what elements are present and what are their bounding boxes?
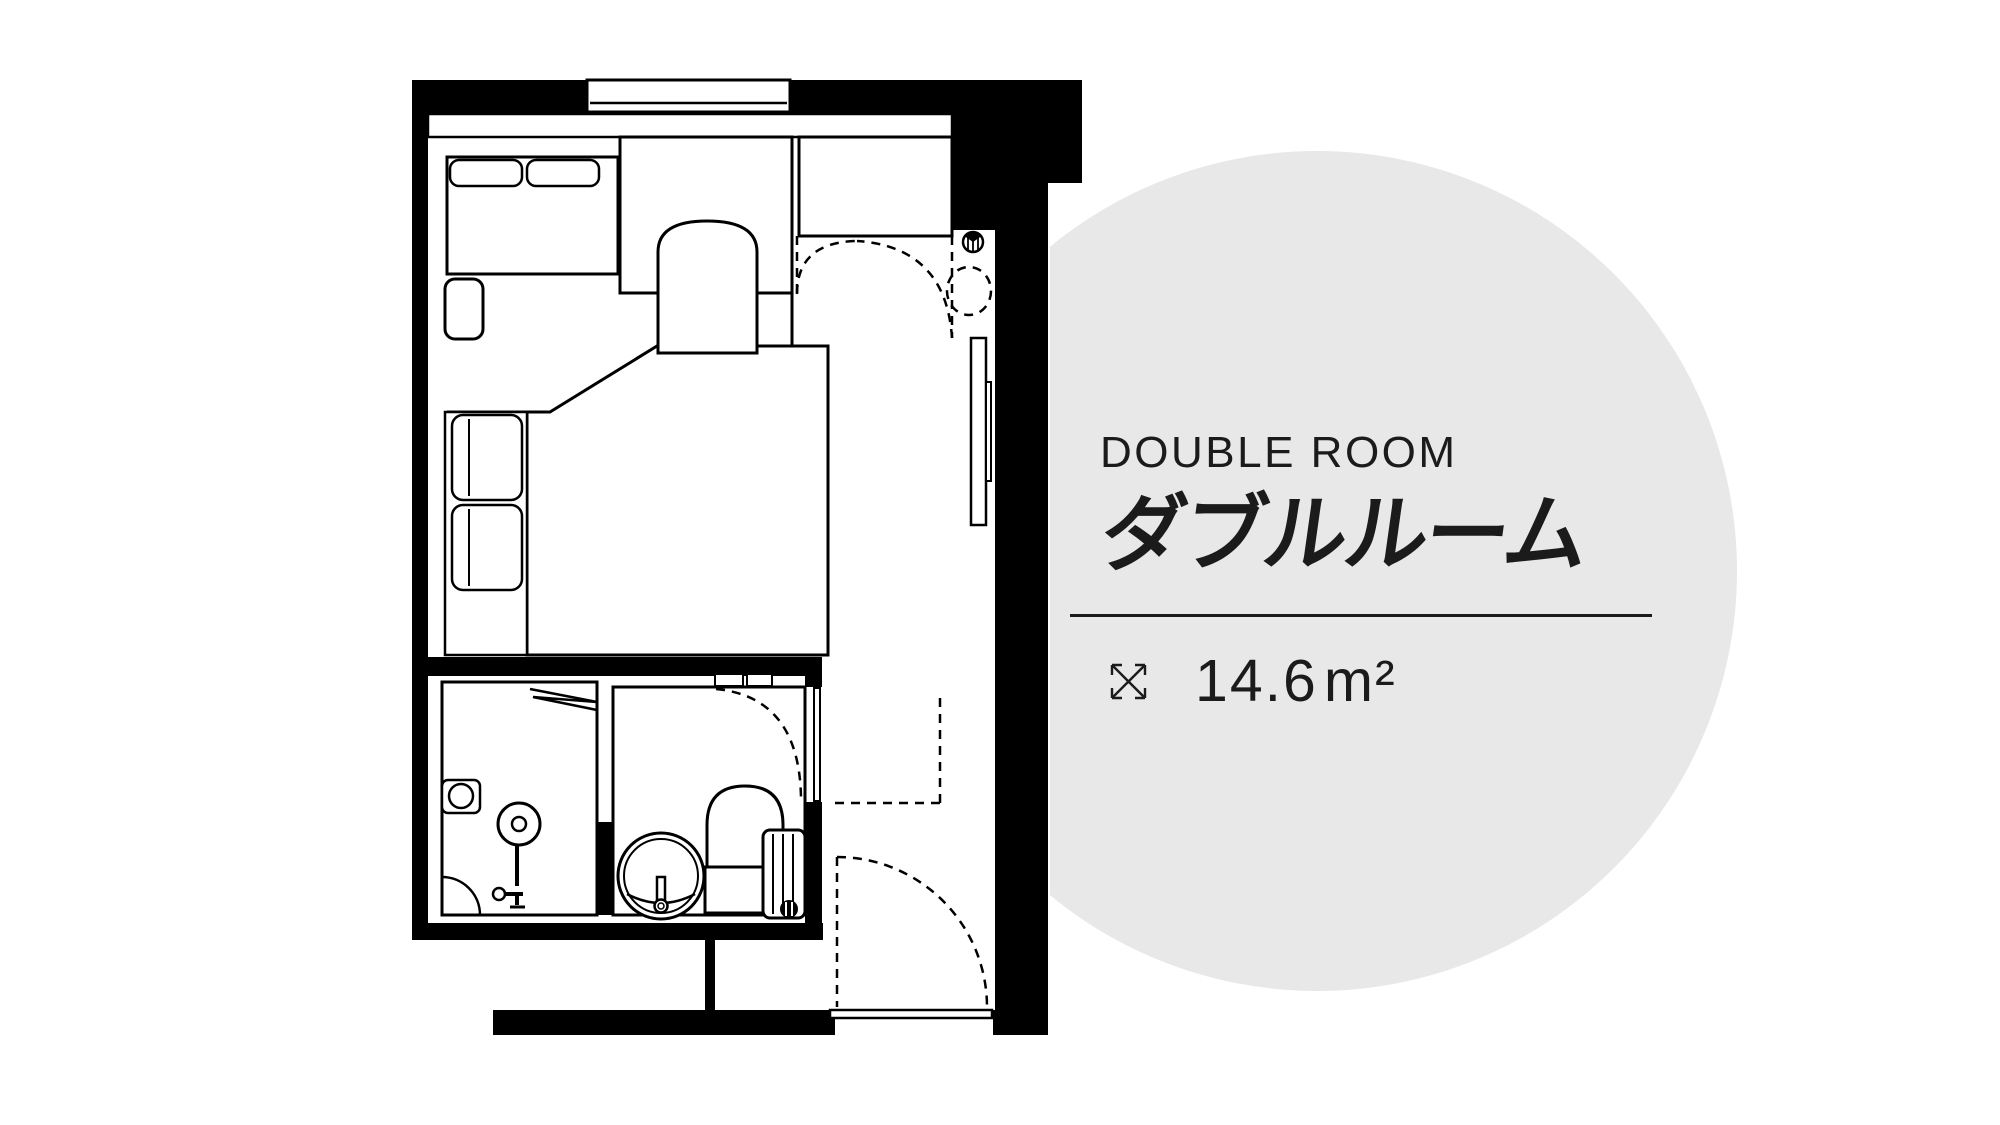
chair (658, 221, 757, 353)
toilet-room (613, 674, 820, 919)
floor-plan-graphic (0, 0, 2000, 1125)
pillow-shelf (445, 412, 527, 655)
window (587, 80, 790, 112)
wash-basin (618, 833, 704, 919)
sprinkler-icon (963, 232, 983, 252)
shower-room (442, 682, 597, 915)
towel-radiator (763, 830, 805, 918)
window-sill-band (428, 114, 952, 137)
side-table (445, 279, 483, 339)
closet (799, 137, 952, 236)
entry-door (830, 1010, 992, 1018)
toilet-door-leaf (814, 688, 820, 801)
page: DOUBLE ROOM ダブルルーム 14.6m² (0, 0, 2000, 1125)
sofa-bench (447, 157, 618, 274)
soap-niche (442, 780, 480, 813)
